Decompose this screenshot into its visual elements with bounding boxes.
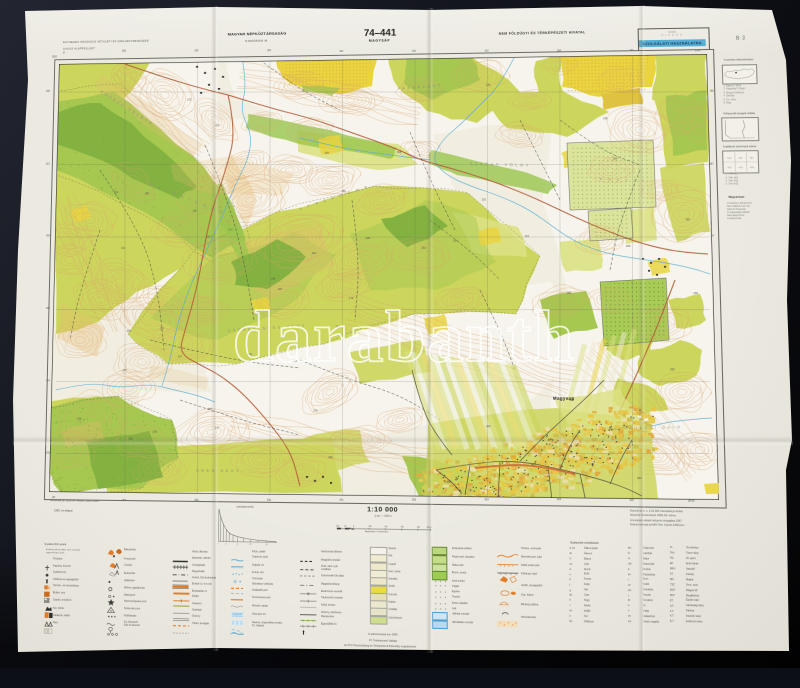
svg-text:191: 191 [127, 330, 132, 333]
svg-text:441: 441 [749, 158, 754, 160]
svg-text:50: 50 [344, 526, 346, 528]
svg-text:442: 442 [727, 168, 732, 170]
svg-text:226: 226 [77, 418, 82, 421]
svg-text:277: 277 [228, 229, 233, 232]
svg-text:185: 185 [325, 152, 330, 155]
svg-text:100: 100 [336, 526, 339, 528]
svg-text:Magysap: Magysap [553, 396, 575, 402]
svg-text:197: 197 [215, 426, 220, 429]
svg-text:258: 258 [613, 157, 618, 160]
svg-text:222: 222 [114, 191, 119, 194]
svg-text:232: 232 [422, 246, 427, 249]
svg-text:Lejtőalapmérték: Lejtőalapmérték [236, 505, 254, 509]
svg-text:194: 194 [637, 477, 642, 480]
svg-text:199: 199 [271, 278, 276, 281]
svg-text:10: 10 [250, 543, 252, 545]
svg-text:0: 0 [353, 526, 354, 528]
svg-text:283: 283 [328, 456, 333, 459]
svg-text:253: 253 [670, 368, 675, 371]
svg-text:226: 226 [486, 425, 491, 428]
svg-text:205: 205 [626, 245, 631, 248]
svg-text:Alapszintköz 2,5 méterenként: Alapszintköz 2,5 méterenként [365, 530, 389, 534]
svg-text:164: 164 [453, 239, 458, 242]
svg-text:OREG HEGY: OREG HEGY [196, 469, 241, 474]
svg-text:162: 162 [215, 124, 220, 127]
svg-text:162: 162 [122, 369, 127, 372]
svg-text:2: 2 [226, 543, 227, 545]
svg-text:276: 276 [313, 410, 318, 413]
svg-text:500 m: 500 m [427, 527, 433, 529]
svg-text:5: 5 [237, 543, 238, 545]
svg-text:203: 203 [208, 408, 213, 411]
svg-text:258: 258 [693, 292, 698, 295]
svg-text:200: 200 [385, 526, 388, 528]
svg-text:253: 253 [525, 235, 530, 238]
svg-text:242: 242 [206, 236, 211, 239]
svg-text:443: 443 [738, 167, 743, 169]
svg-text:185: 185 [145, 192, 150, 195]
svg-text:424: 424 [738, 158, 743, 160]
svg-text:208: 208 [366, 237, 371, 240]
svg-text:178: 178 [152, 431, 157, 434]
svg-text:300: 300 [401, 526, 404, 528]
svg-text:235: 235 [128, 437, 133, 440]
svg-text:1: 1 [218, 543, 219, 545]
svg-text:191: 191 [278, 288, 283, 291]
svg-text:100: 100 [368, 526, 371, 528]
svg-text:213: 213 [187, 98, 192, 101]
svg-text:258: 258 [397, 151, 402, 154]
svg-text:423: 423 [727, 158, 732, 160]
svg-text:20: 20 [266, 544, 268, 546]
svg-text:195: 195 [685, 218, 690, 221]
svg-text:220: 220 [482, 198, 487, 201]
svg-text:190: 190 [192, 209, 197, 212]
svg-text:400: 400 [417, 527, 420, 529]
svg-text:160: 160 [312, 252, 317, 255]
svg-text:162: 162 [121, 247, 126, 250]
svg-text:145: 145 [486, 83, 491, 86]
svg-text:444: 444 [749, 167, 754, 169]
svg-text:247: 247 [178, 355, 183, 358]
svg-text:237: 237 [160, 327, 165, 330]
svg-text:232: 232 [603, 117, 608, 120]
svg-text:268: 268 [445, 481, 450, 484]
